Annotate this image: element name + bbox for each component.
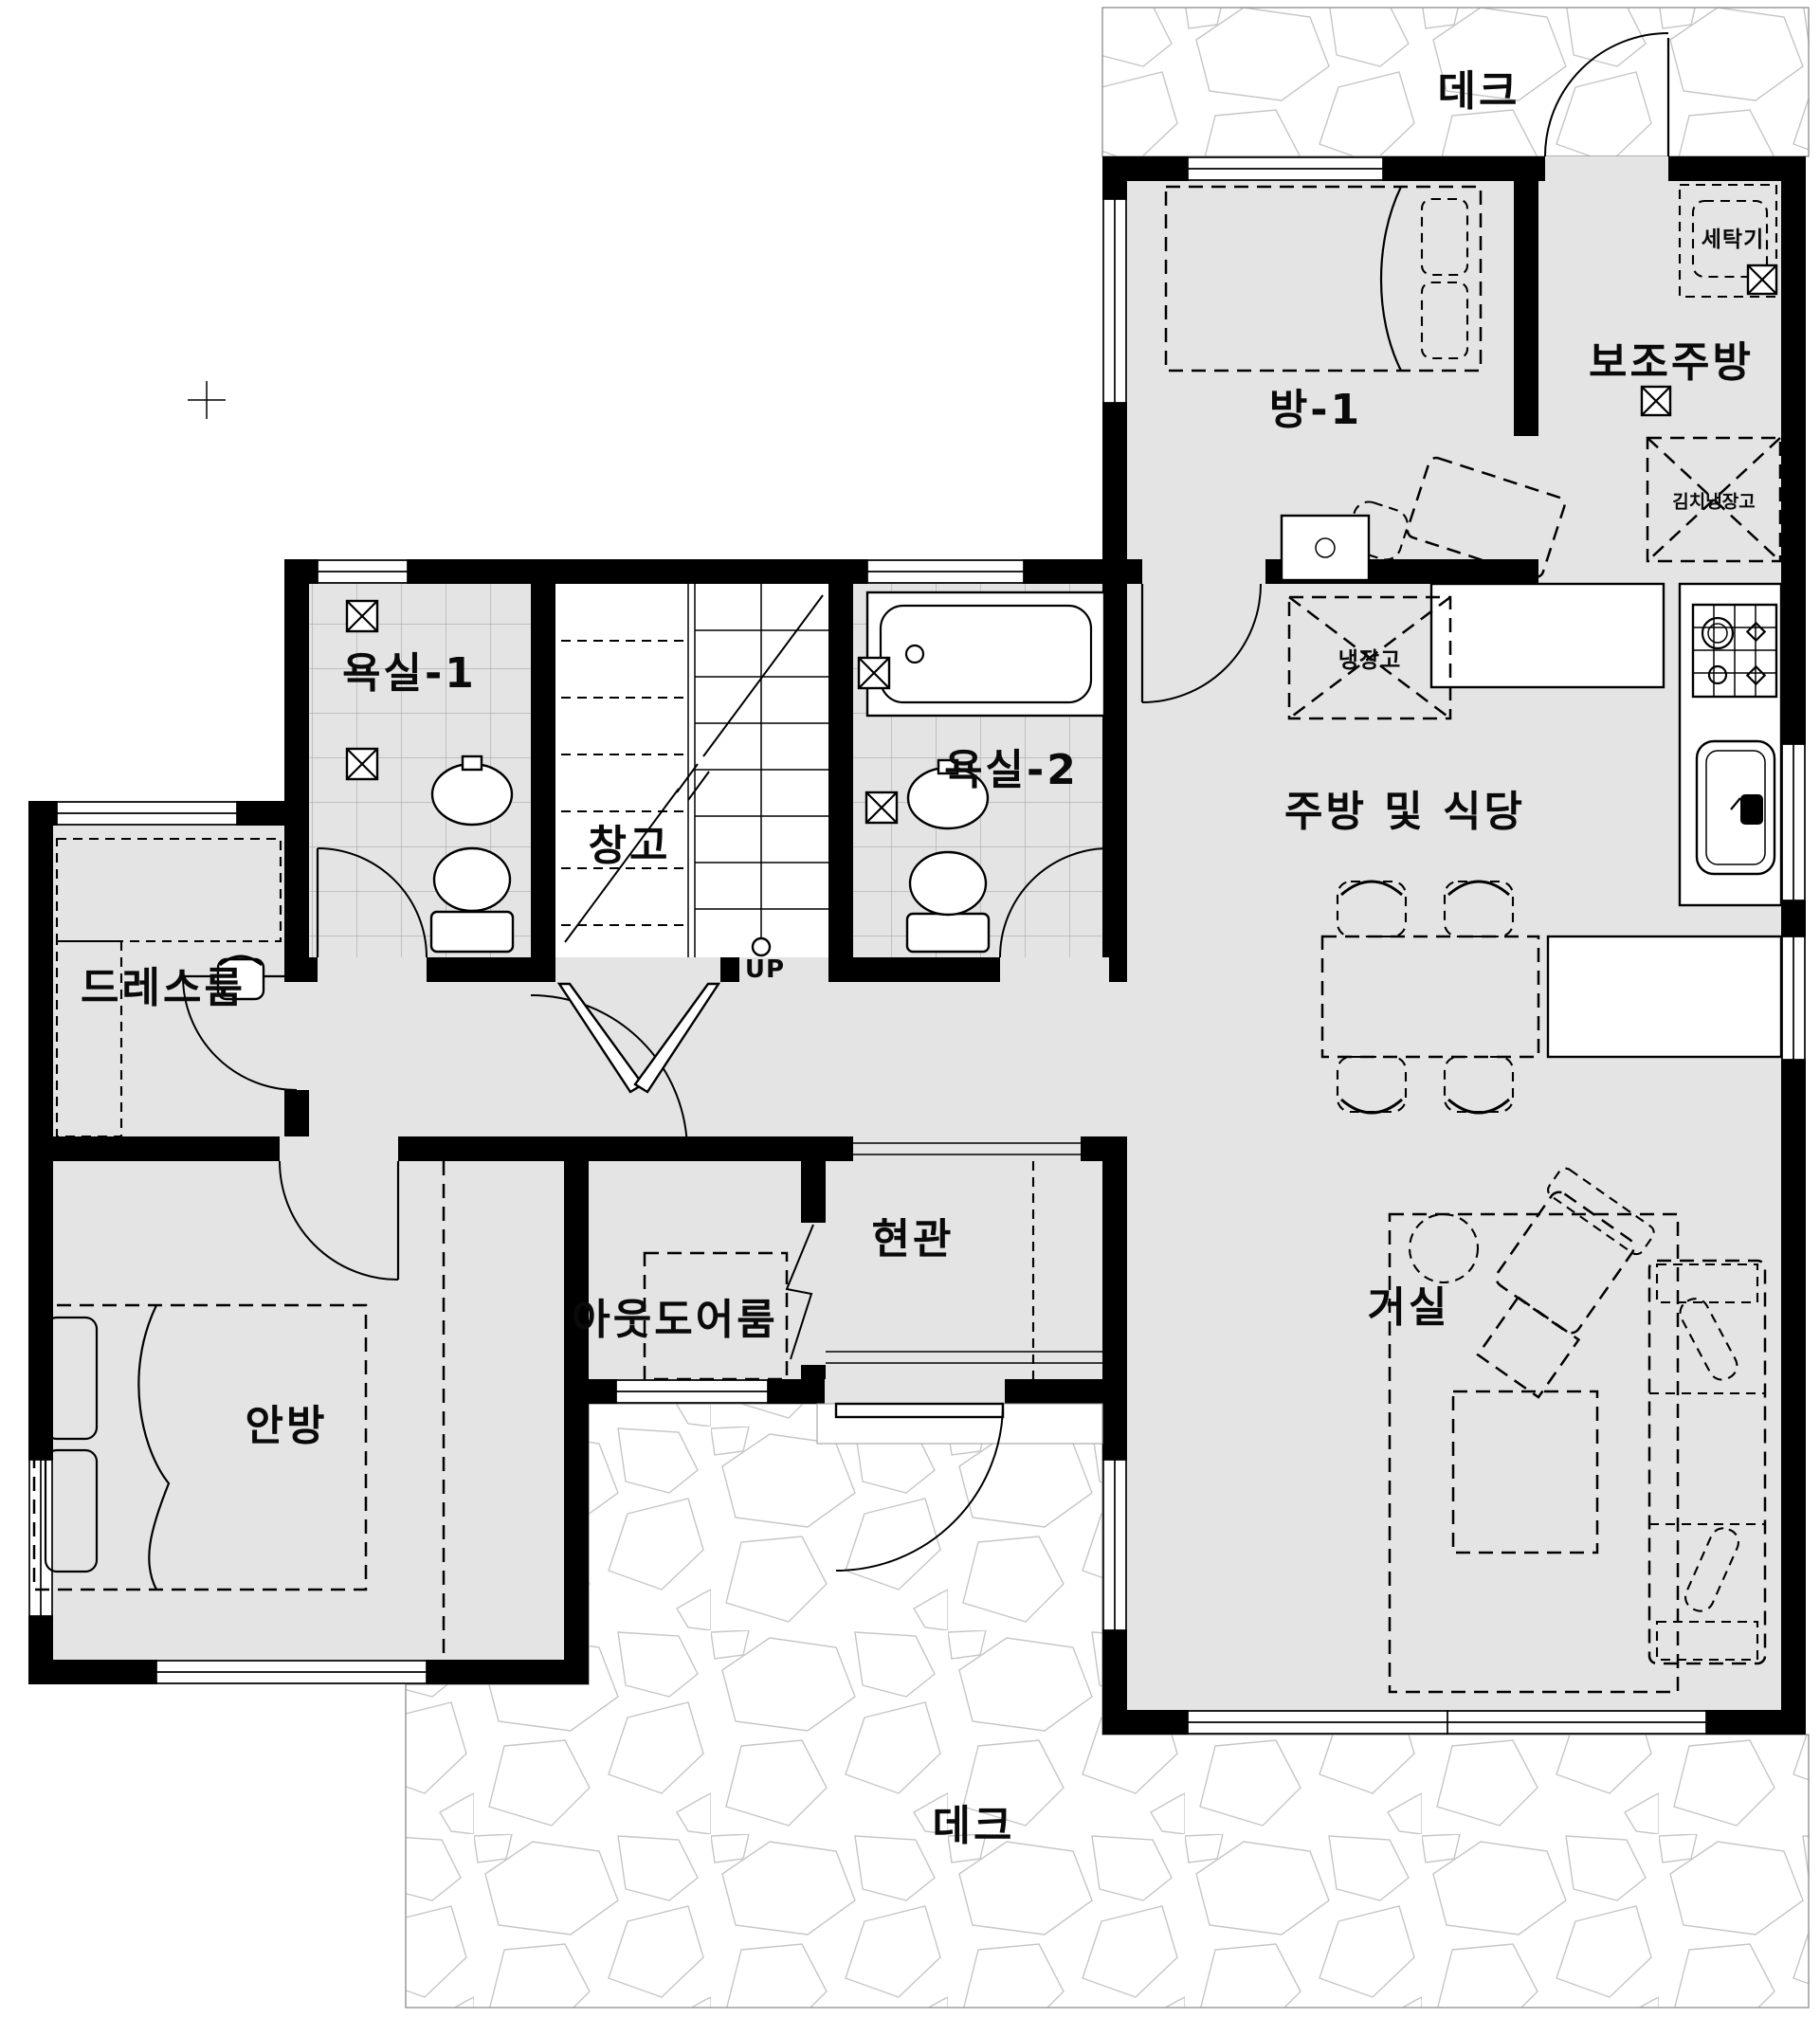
room-label-deck-bottom: 데크 [933,1791,1015,1852]
room-label-deck-top: 데크 [1438,57,1520,118]
room-label-aux-kitchen: 보조주방 [1589,328,1754,389]
outlet-icon [347,601,377,631]
nightstand-icon [1282,516,1369,580]
outlet-icon [347,749,377,779]
corner-marker [188,381,226,419]
sink-icon [1697,741,1774,874]
floor-plan: 데크 방-1 보조주방 욕실-1 창고 욕실-2 주방 및 식당 드레스룸 현관… [0,0,1820,2036]
outlet-icon [866,792,897,823]
room-label-entrance: 현관 [872,1205,955,1265]
window-bath2-north [867,559,1024,584]
room-label-storage: 창고 [589,811,671,872]
outlet-icon [1642,387,1670,415]
window-outdoor-south [616,1379,768,1404]
floor-plan-drawing [0,0,1820,2036]
room-label-master-bedroom: 안방 [246,1391,328,1452]
room-label-living-room: 거실 [1368,1273,1450,1334]
window-living-south [1188,1710,1706,1735]
window-room1-west [1102,199,1127,403]
room-label-kitchen-dining: 주방 및 식당 [1284,777,1525,838]
toilet-icon [431,848,513,952]
room-label-bathroom-2: 욕실-2 [944,736,1079,796]
outlet-icon [1748,265,1776,294]
room-label-outdoor-room: 아웃도어룸 [572,1285,777,1346]
bathtub-icon [867,592,1104,716]
window-dining-east [1781,936,1806,1060]
window-room1-north [1188,156,1383,181]
toilet-icon [907,852,989,952]
window-dressroom-north [57,801,237,826]
window-master-west [28,1460,53,1616]
kitchen-counter-top [1431,584,1664,687]
room-label-room-1: 방-1 [1269,375,1362,436]
window-master-south [156,1660,427,1684]
appliance-label-refrigerator: 냉장고 [1338,642,1401,674]
appliance-label-washing-machine: 세탁기 [1702,221,1764,253]
window-bench [1548,936,1781,1057]
outlet-icon [859,658,889,688]
window-kitchen-east [1781,744,1806,900]
window-living-west [1102,1460,1127,1630]
appliance-label-kimchi-refrigerator: 김치냉장고 [1672,488,1755,514]
room-label-bathroom-1: 욕실-1 [342,639,477,700]
window-bath1-north [318,559,408,584]
stairs-up-label: UP [745,955,785,984]
room-label-dress-room: 드레스룸 [81,954,246,1014]
stove-icon [1693,605,1776,697]
